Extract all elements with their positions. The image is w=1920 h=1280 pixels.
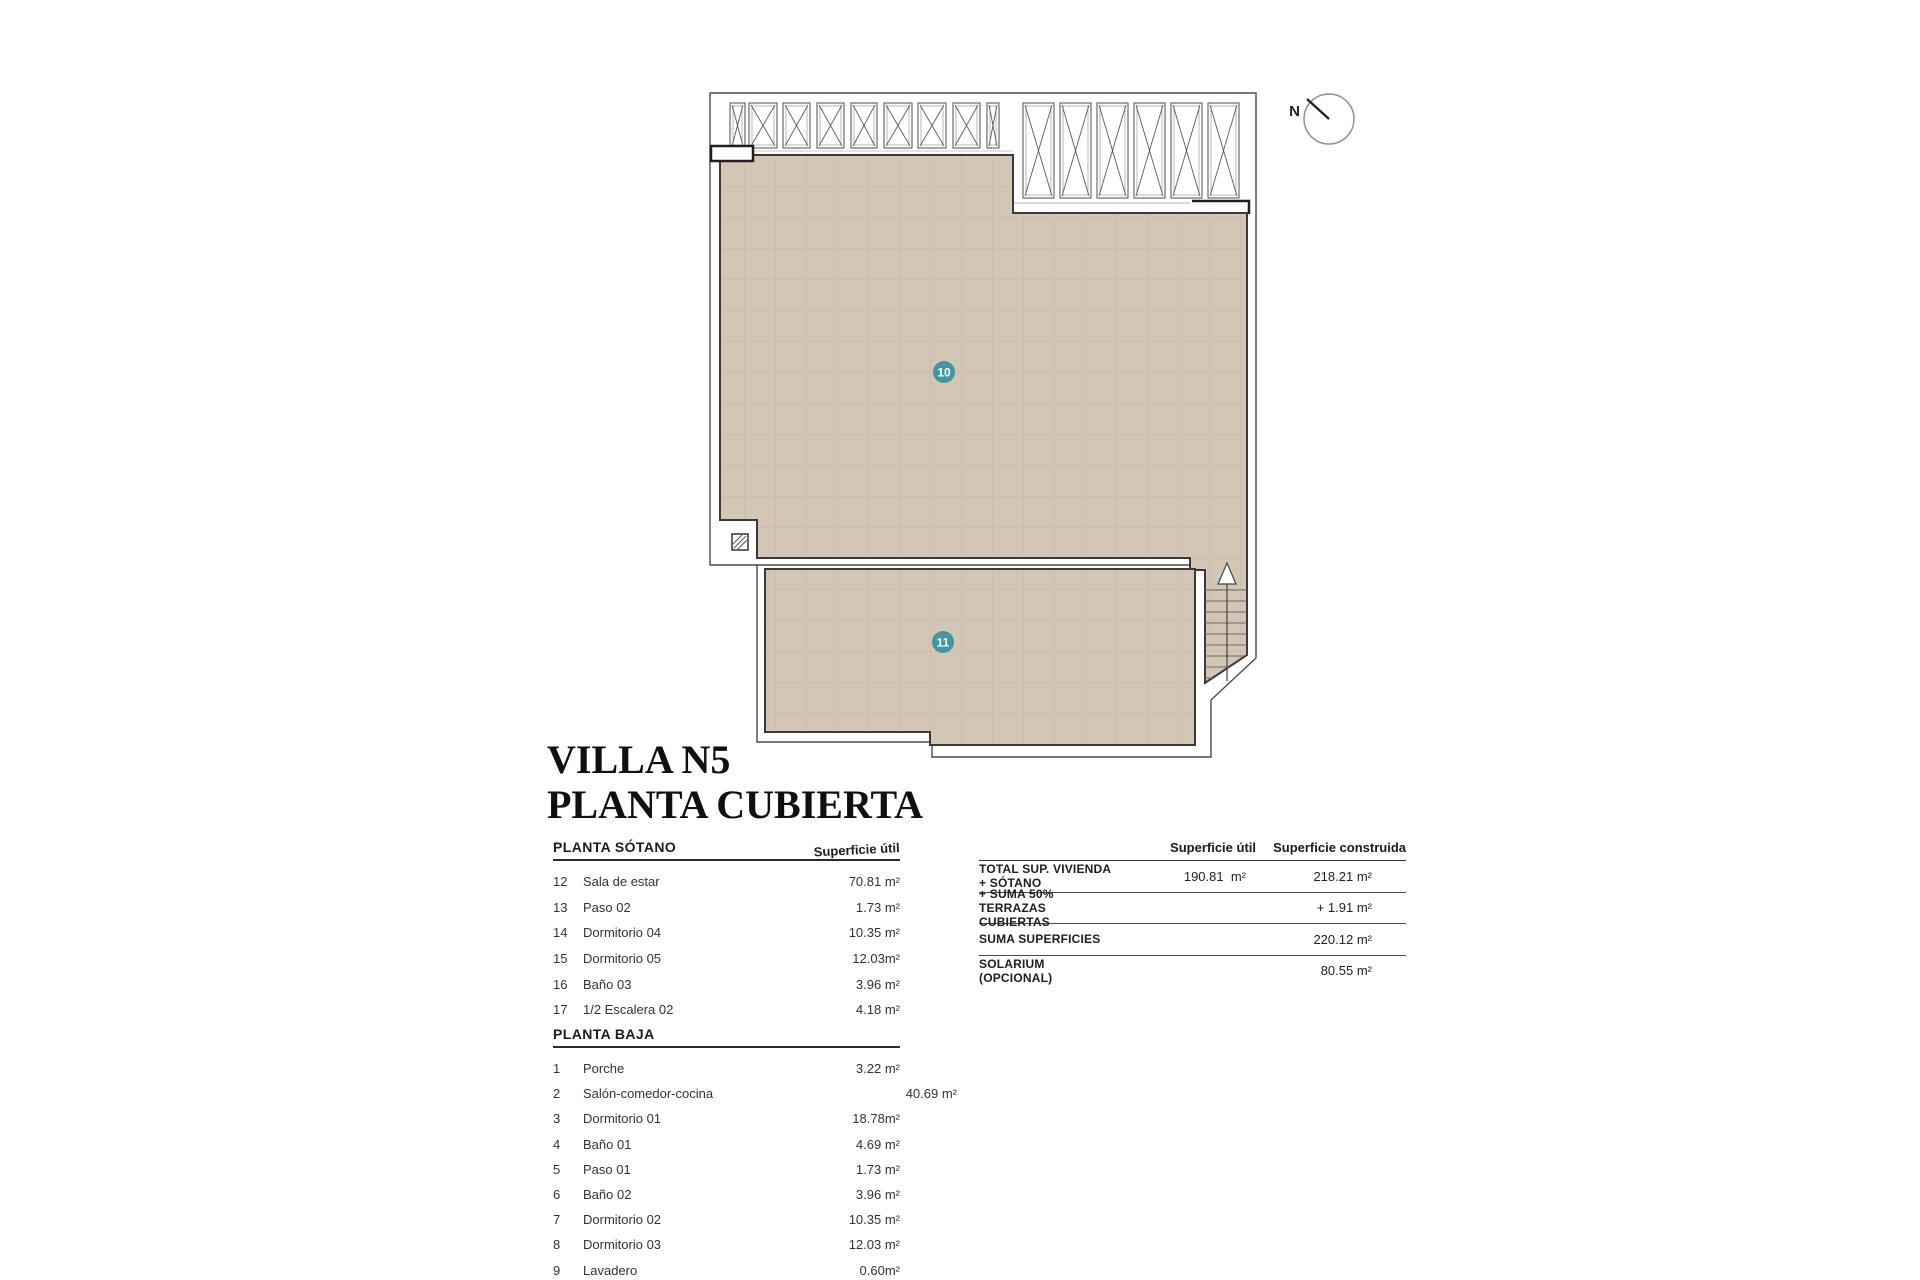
room-number: 1 bbox=[553, 1061, 583, 1076]
room-number: 4 bbox=[553, 1137, 583, 1152]
summary-superficie-construida-value: 220.12 m² bbox=[1256, 932, 1406, 947]
north-compass: N bbox=[1289, 94, 1354, 144]
room-number: 16 bbox=[553, 977, 583, 992]
summary-superficie-construida-value: 218.21 m² bbox=[1256, 869, 1406, 884]
room-number: 8 bbox=[553, 1237, 583, 1252]
room-name: Dormitorio 02 bbox=[583, 1212, 849, 1227]
room-row: 15Dormitorio 0512.03m² bbox=[553, 946, 900, 972]
room-area-value: 12.03 m² bbox=[849, 1237, 900, 1252]
room-number: 12 bbox=[553, 874, 583, 889]
room-name: Porche bbox=[583, 1061, 856, 1076]
room-area-value: 40.69 m² bbox=[906, 1086, 957, 1101]
room-area-value: 3.96 m² bbox=[856, 1187, 900, 1202]
room-number: 3 bbox=[553, 1111, 583, 1126]
room-area-value: 70.81 m² bbox=[849, 874, 900, 889]
room-number: 5 bbox=[553, 1162, 583, 1177]
room-name: Paso 01 bbox=[583, 1162, 856, 1177]
column-header-superficie-util: Superficie útil bbox=[813, 840, 900, 859]
section-divider bbox=[553, 1046, 900, 1048]
plan-sheet: 10 11 N VILLA N5 PLANTA CUBIERTA PLANTA … bbox=[0, 0, 1920, 1280]
summary-row: + SUMA 50% TERRAZAS CUBIERTAS+ 1.91 m² bbox=[979, 893, 1406, 925]
room-area-value: 3.22 m² bbox=[856, 1061, 900, 1076]
summary-label: SOLARIUM (OPCIONAL) bbox=[979, 957, 1116, 985]
room-name: Baño 03 bbox=[583, 977, 856, 992]
room-number: 2 bbox=[553, 1086, 583, 1101]
room-area-value: 1.73 m² bbox=[856, 1162, 900, 1177]
room-row: 2Salón-comedor-cocina40.69 m² bbox=[553, 1081, 900, 1106]
floor-plan-drawing: 10 11 N bbox=[0, 0, 1920, 1280]
room-area-value: 18.78m² bbox=[852, 1111, 900, 1126]
north-label: N bbox=[1289, 103, 1300, 120]
room-row: 1Porche3.22 m² bbox=[553, 1056, 900, 1081]
room-name: Dormitorio 04 bbox=[583, 925, 849, 940]
table-planta-sotano: PLANTA SÓTANO Superficie útil 12Sala de … bbox=[553, 838, 900, 1023]
summary-superficie-construida-value: 80.55 m² bbox=[1256, 963, 1406, 978]
room-name: Baño 02 bbox=[583, 1187, 856, 1202]
room-row: 3Dormitorio 0118.78m² bbox=[553, 1106, 900, 1131]
table-planta-baja: PLANTA BAJA 1Porche3.22 m²2Salón-comedor… bbox=[553, 1025, 900, 1280]
room-row: 13Paso 021.73 m² bbox=[553, 895, 900, 921]
room-name: Sala de estar bbox=[583, 874, 849, 889]
room-area-value: 3.96 m² bbox=[856, 977, 900, 992]
room-row: 12Sala de estar70.81 m² bbox=[553, 869, 900, 895]
room-number: 9 bbox=[553, 1263, 583, 1278]
room-name: Lavadero bbox=[583, 1263, 860, 1278]
room-number: 17 bbox=[553, 1002, 583, 1017]
svg-text:11: 11 bbox=[937, 636, 950, 650]
room-name: Dormitorio 03 bbox=[583, 1237, 849, 1252]
parapet-wall-stub bbox=[711, 146, 753, 161]
room-area-value: 4.18 m² bbox=[856, 1002, 900, 1017]
room-number: 6 bbox=[553, 1187, 583, 1202]
summary-superficie-util-value: 190.81 m² bbox=[1116, 869, 1256, 884]
room-name: Salón-comedor-cocina bbox=[583, 1086, 906, 1101]
room-row: 4Baño 014.69 m² bbox=[553, 1132, 900, 1157]
room-area-value: 12.03m² bbox=[852, 951, 900, 966]
area-label-11: 11 bbox=[932, 631, 954, 653]
summary-table: Superficie útil Superficie construida TO… bbox=[979, 838, 1406, 986]
room-name: Dormitorio 05 bbox=[583, 951, 852, 966]
title-line-2: PLANTA CUBIERTA bbox=[547, 782, 923, 827]
room-row: 9Lavadero0.60m² bbox=[553, 1258, 900, 1280]
room-name: 1/2 Escalera 02 bbox=[583, 1002, 856, 1017]
room-row: 16Baño 033.96 m² bbox=[553, 971, 900, 997]
chimney-vent bbox=[732, 534, 748, 550]
room-name: Dormitorio 01 bbox=[583, 1111, 852, 1126]
plan-title: VILLA N5 PLANTA CUBIERTA bbox=[547, 737, 923, 827]
room-area-value: 1.73 m² bbox=[856, 900, 900, 915]
title-line-1: VILLA N5 bbox=[547, 737, 923, 782]
summary-superficie-construida-value: + 1.91 m² bbox=[1256, 900, 1406, 915]
summary-label: + SUMA 50% TERRAZAS CUBIERTAS bbox=[979, 887, 1116, 929]
room-area-value: 10.35 m² bbox=[849, 925, 900, 940]
column-header-superficie-construida: Superficie construida bbox=[1256, 840, 1406, 855]
room-row: 5Paso 011.73 m² bbox=[553, 1157, 900, 1182]
room-number: 15 bbox=[553, 951, 583, 966]
area-label-10: 10 bbox=[933, 361, 955, 383]
room-number: 14 bbox=[553, 925, 583, 940]
roof-area-11 bbox=[765, 569, 1195, 745]
room-area-value: 0.60m² bbox=[860, 1263, 900, 1278]
room-row: 14Dormitorio 0410.35 m² bbox=[553, 920, 900, 946]
section-divider bbox=[553, 859, 900, 861]
section-header-sotano: PLANTA SÓTANO bbox=[553, 839, 676, 855]
column-header-superficie-util: Superficie útil bbox=[1116, 840, 1256, 855]
room-area-value: 4.69 m² bbox=[856, 1137, 900, 1152]
room-name: Baño 01 bbox=[583, 1137, 856, 1152]
room-number: 13 bbox=[553, 900, 583, 915]
svg-text:10: 10 bbox=[937, 366, 951, 380]
room-row: 7Dormitorio 0210.35 m² bbox=[553, 1207, 900, 1232]
summary-label: SUMA SUPERFICIES bbox=[979, 932, 1116, 946]
room-number: 7 bbox=[553, 1212, 583, 1227]
room-row: 6Baño 023.96 m² bbox=[553, 1182, 900, 1207]
summary-row: SOLARIUM (OPCIONAL)80.55 m² bbox=[979, 956, 1406, 987]
room-area-value: 10.35 m² bbox=[849, 1212, 900, 1227]
section-header-baja: PLANTA BAJA bbox=[553, 1026, 655, 1042]
compass-needle bbox=[1307, 99, 1329, 119]
room-name: Paso 02 bbox=[583, 900, 856, 915]
room-row: 171/2 Escalera 024.18 m² bbox=[553, 997, 900, 1023]
room-row: 8Dormitorio 0312.03 m² bbox=[553, 1232, 900, 1257]
